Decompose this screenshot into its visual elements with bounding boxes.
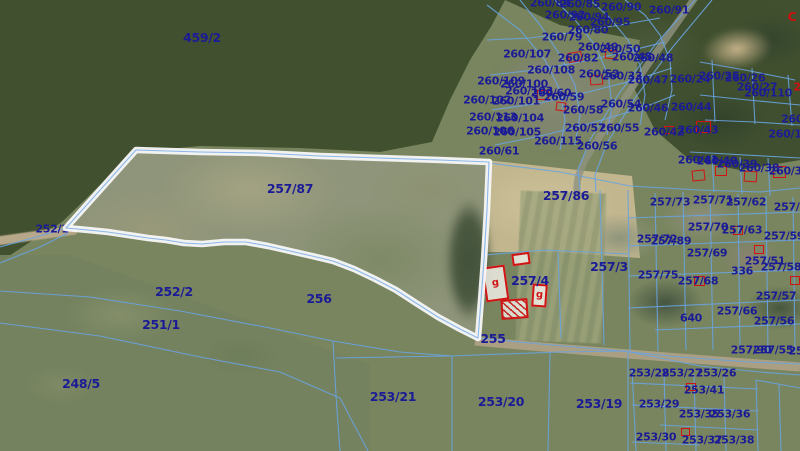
map-viewport[interactable]: gg 459/2260/84260/85260/90260/91260/9226… xyxy=(0,0,800,451)
highlighted-parcel-outline[interactable] xyxy=(0,0,800,451)
